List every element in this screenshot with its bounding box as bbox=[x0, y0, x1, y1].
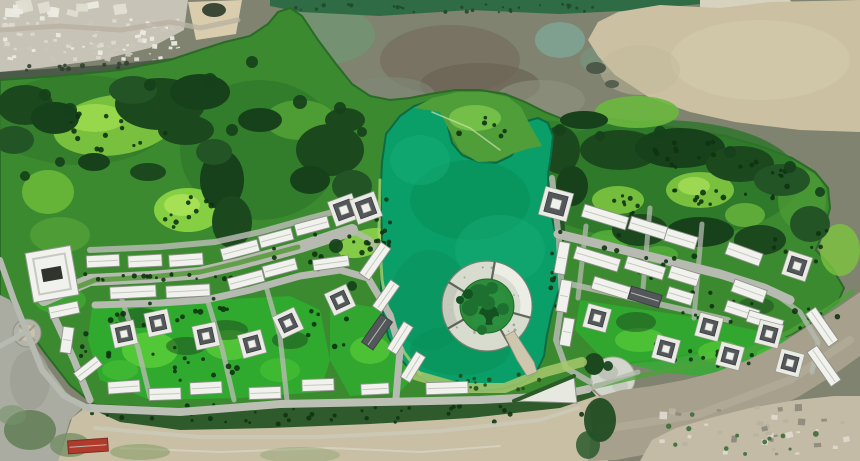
tree-dot bbox=[294, 6, 298, 10]
tree-dot bbox=[825, 229, 828, 232]
tree-dot bbox=[665, 157, 670, 162]
small-building bbox=[56, 33, 61, 37]
small-building bbox=[30, 32, 34, 36]
tree-dot bbox=[567, 6, 570, 9]
small-building bbox=[50, 57, 55, 62]
tree-dot bbox=[393, 5, 396, 8]
blob bbox=[290, 166, 330, 194]
tree-dot bbox=[550, 252, 554, 256]
tree-dot bbox=[383, 228, 388, 233]
tree-dot bbox=[180, 314, 185, 319]
tree-dot bbox=[124, 61, 129, 66]
tree-dot bbox=[193, 309, 198, 314]
tree-dot bbox=[705, 141, 710, 146]
red-roof-building bbox=[68, 438, 109, 454]
tree-dot bbox=[508, 8, 512, 12]
tree-canopy bbox=[203, 73, 217, 87]
blob bbox=[10, 350, 50, 410]
tree-dot bbox=[117, 62, 121, 66]
tree-dot bbox=[460, 6, 463, 9]
tree-dot bbox=[575, 6, 578, 9]
tree-dot bbox=[101, 278, 104, 281]
slab-building bbox=[426, 381, 468, 394]
tree-dot bbox=[735, 434, 739, 438]
tree-dot bbox=[76, 114, 81, 119]
small-building bbox=[69, 41, 74, 45]
small-building bbox=[833, 446, 838, 450]
tree-dot bbox=[310, 412, 315, 417]
small-building bbox=[814, 443, 821, 448]
tower-skylight bbox=[154, 319, 163, 328]
tree-dot bbox=[66, 66, 71, 71]
blob bbox=[754, 164, 810, 196]
small-building bbox=[98, 42, 104, 47]
small-building bbox=[753, 434, 759, 437]
tree-dot bbox=[472, 377, 476, 381]
tower-building bbox=[144, 309, 172, 337]
slab-building bbox=[302, 378, 334, 391]
tree-dot bbox=[749, 163, 754, 168]
tree-dot bbox=[767, 436, 771, 440]
tree-dot bbox=[701, 356, 705, 360]
tree-dot bbox=[106, 354, 111, 359]
tree-dot bbox=[83, 331, 88, 336]
blob bbox=[196, 139, 232, 165]
small-building bbox=[73, 57, 77, 61]
small-building bbox=[5, 8, 20, 18]
tree-dot bbox=[708, 291, 712, 295]
tree-dot bbox=[352, 240, 355, 243]
tree-dot bbox=[672, 189, 676, 193]
tree-dot bbox=[492, 123, 496, 127]
tree-dot bbox=[187, 361, 190, 364]
small-building bbox=[126, 44, 129, 46]
tower-skylight bbox=[120, 330, 129, 339]
small-building bbox=[114, 4, 127, 15]
small-building bbox=[94, 52, 96, 54]
slab-building bbox=[86, 254, 120, 268]
tree-dot bbox=[322, 3, 326, 7]
tree-dot bbox=[120, 311, 126, 317]
tree-dot bbox=[106, 414, 109, 417]
tree-dot bbox=[376, 239, 381, 244]
tree-dot bbox=[179, 379, 182, 382]
tree-dot bbox=[781, 434, 786, 439]
tree-canopy bbox=[293, 95, 307, 109]
slab-building bbox=[361, 383, 390, 395]
tree-canopy bbox=[462, 300, 478, 316]
small-building bbox=[659, 439, 664, 443]
small-building bbox=[659, 411, 667, 419]
tree-dot bbox=[170, 272, 172, 274]
tree-dot bbox=[616, 233, 621, 238]
tree-dot bbox=[498, 11, 500, 13]
tree-dot bbox=[283, 413, 288, 418]
tree-dot bbox=[686, 426, 691, 431]
tree-dot bbox=[697, 156, 701, 160]
tree-dot bbox=[691, 253, 697, 259]
small-building bbox=[109, 52, 114, 56]
tree-dot bbox=[342, 343, 345, 346]
small-building bbox=[131, 32, 135, 35]
small-building bbox=[766, 432, 772, 436]
tree-dot bbox=[79, 354, 83, 358]
small-building bbox=[723, 451, 728, 455]
tree-dot bbox=[672, 256, 677, 261]
tree-dot bbox=[628, 196, 633, 201]
tree-dot bbox=[502, 408, 507, 413]
tree-dot bbox=[674, 165, 677, 168]
tree-dot bbox=[332, 344, 338, 350]
tree-dot bbox=[744, 193, 747, 196]
small-building bbox=[76, 4, 88, 12]
tree-dot bbox=[148, 302, 152, 306]
tree-dot bbox=[211, 373, 216, 378]
tree-dot bbox=[621, 194, 624, 197]
tree-dot bbox=[27, 64, 31, 68]
tree-dot bbox=[539, 4, 541, 6]
tree-dot bbox=[189, 195, 193, 199]
tree-dot bbox=[276, 422, 281, 427]
tree-canopy bbox=[334, 102, 346, 114]
tree-dot bbox=[75, 136, 80, 141]
slab-building bbox=[108, 380, 141, 394]
small-building bbox=[114, 47, 119, 51]
tree-dot bbox=[602, 245, 607, 250]
tree-dot bbox=[720, 195, 726, 201]
tree-dot bbox=[70, 121, 73, 124]
blob bbox=[790, 206, 830, 242]
small-building bbox=[90, 42, 93, 44]
blob bbox=[560, 111, 608, 129]
tree-canopy bbox=[784, 161, 796, 173]
blob bbox=[616, 312, 656, 332]
small-building bbox=[171, 41, 177, 46]
tree-canopy bbox=[724, 146, 736, 158]
tree-dot bbox=[316, 313, 320, 317]
tree-dot bbox=[407, 406, 411, 410]
blob bbox=[584, 353, 604, 375]
tree-dot bbox=[230, 370, 235, 375]
tree-dot bbox=[451, 405, 455, 409]
tree-dot bbox=[306, 333, 311, 338]
tree-dot bbox=[459, 374, 463, 378]
tree-dot bbox=[402, 7, 405, 10]
tree-dot bbox=[579, 412, 584, 417]
tower-skylight bbox=[662, 345, 671, 354]
tree-dot bbox=[813, 431, 819, 437]
tree-dot bbox=[300, 9, 302, 11]
tree-dot bbox=[681, 311, 684, 314]
tree-canopy bbox=[55, 157, 65, 167]
tree-dot bbox=[724, 446, 729, 451]
blob bbox=[535, 22, 585, 58]
tree-dot bbox=[367, 241, 371, 245]
tree-canopy bbox=[486, 282, 498, 294]
tree-dot bbox=[635, 204, 639, 208]
tree-dot bbox=[487, 377, 492, 382]
tree-dot bbox=[115, 312, 120, 317]
tree-dot bbox=[163, 217, 167, 221]
tree-dot bbox=[225, 308, 228, 311]
tree-dot bbox=[161, 278, 165, 282]
small-building bbox=[36, 22, 39, 25]
small-building bbox=[18, 50, 22, 52]
tree-dot bbox=[151, 353, 154, 356]
tower-skylight bbox=[202, 332, 211, 341]
tree-dot bbox=[591, 6, 594, 9]
tree-dot bbox=[714, 189, 718, 193]
small-building bbox=[134, 57, 139, 61]
tower-skylight bbox=[593, 314, 602, 323]
tree-dot bbox=[312, 251, 318, 257]
tree-dot bbox=[400, 6, 402, 8]
tree-dot bbox=[673, 443, 677, 447]
tree-dot bbox=[347, 3, 350, 6]
tree-dot bbox=[709, 203, 712, 206]
tree-dot bbox=[367, 246, 373, 252]
tower-skylight bbox=[550, 198, 562, 210]
tree-dot bbox=[612, 199, 616, 203]
tree-dot bbox=[482, 266, 484, 268]
tree-dot bbox=[212, 297, 216, 301]
blob bbox=[260, 358, 300, 382]
tree-dot bbox=[155, 276, 158, 279]
tree-dot bbox=[623, 203, 626, 206]
tree-dot bbox=[784, 184, 790, 190]
tree-dot bbox=[694, 313, 697, 316]
blob bbox=[78, 153, 110, 171]
tree-canopy bbox=[329, 239, 343, 253]
small-building bbox=[164, 28, 166, 29]
tree-canopy bbox=[603, 361, 613, 371]
tree-dot bbox=[521, 387, 524, 390]
blob bbox=[586, 62, 606, 74]
small-building bbox=[121, 57, 125, 61]
tree-dot bbox=[644, 256, 648, 260]
tree-dot bbox=[754, 160, 759, 165]
small-building bbox=[771, 415, 778, 420]
tree-dot bbox=[700, 190, 706, 196]
tree-dot bbox=[558, 230, 562, 234]
tree-dot bbox=[750, 353, 754, 357]
tree-dot bbox=[197, 309, 203, 315]
masterplan-aerial-svg bbox=[0, 0, 860, 461]
tree-dot bbox=[359, 250, 364, 255]
slab-building bbox=[166, 284, 211, 298]
tree-dot bbox=[697, 202, 700, 205]
tree-dot bbox=[447, 412, 451, 416]
tree-dot bbox=[119, 119, 123, 123]
tree-dot bbox=[173, 346, 176, 349]
tree-dot bbox=[141, 274, 146, 279]
tree-canopy bbox=[654, 126, 666, 138]
tree-dot bbox=[309, 309, 314, 314]
small-building bbox=[91, 44, 97, 49]
tree-dot bbox=[835, 314, 840, 319]
tower-skylight bbox=[765, 330, 774, 339]
tree-dot bbox=[499, 134, 504, 139]
tree-dot bbox=[513, 324, 516, 327]
tree-dot bbox=[186, 200, 191, 205]
tree-dot bbox=[743, 452, 747, 456]
tower-building bbox=[192, 322, 220, 350]
tree-dot bbox=[689, 357, 693, 361]
tree-dot bbox=[173, 365, 177, 369]
tree-canopy bbox=[63, 103, 77, 117]
tree-dot bbox=[771, 171, 774, 174]
tree-dot bbox=[58, 65, 62, 69]
small-building bbox=[176, 47, 178, 48]
tree-canopy bbox=[477, 325, 487, 335]
tree-dot bbox=[688, 349, 692, 353]
tree-dot bbox=[517, 373, 521, 377]
small-building bbox=[775, 453, 778, 455]
small-building bbox=[48, 11, 58, 17]
tree-dot bbox=[254, 411, 257, 414]
tree-dot bbox=[312, 322, 317, 327]
tree-dot bbox=[132, 273, 137, 278]
slab-building bbox=[190, 381, 223, 395]
small-building bbox=[26, 46, 31, 50]
tree-dot bbox=[396, 5, 400, 9]
tower-building bbox=[110, 320, 138, 348]
tower-skylight bbox=[786, 359, 795, 368]
tree-dot bbox=[208, 416, 213, 421]
small-building bbox=[796, 431, 800, 433]
small-building bbox=[32, 49, 36, 52]
small-building bbox=[111, 40, 116, 44]
tree-canopy bbox=[492, 316, 502, 326]
blob bbox=[449, 105, 501, 131]
slab-building bbox=[110, 285, 157, 299]
tree-dot bbox=[690, 412, 695, 417]
tree-dot bbox=[583, 10, 586, 13]
small-building bbox=[687, 435, 691, 439]
tree-dot bbox=[394, 421, 397, 424]
tree-dot bbox=[818, 245, 823, 250]
plaza-ring-segment bbox=[448, 285, 454, 325]
small-building bbox=[98, 50, 103, 55]
small-building bbox=[170, 36, 175, 40]
tree-dot bbox=[142, 323, 146, 327]
tree-canopy bbox=[20, 171, 30, 181]
small-building bbox=[125, 52, 131, 57]
tree-dot bbox=[710, 140, 715, 145]
tree-dot bbox=[773, 237, 777, 241]
tree-dot bbox=[710, 304, 715, 309]
tree-dot bbox=[194, 209, 199, 214]
tree-dot bbox=[195, 277, 198, 280]
tree-dot bbox=[483, 383, 486, 386]
small-building bbox=[778, 407, 783, 412]
small-building bbox=[798, 418, 806, 425]
tree-dot bbox=[333, 413, 337, 417]
tree-dot bbox=[483, 116, 487, 120]
small-building bbox=[150, 37, 154, 41]
small-building bbox=[107, 45, 112, 49]
tree-dot bbox=[807, 307, 810, 310]
tree-dot bbox=[222, 276, 227, 281]
tree-dot bbox=[108, 317, 114, 323]
blob bbox=[202, 3, 226, 17]
tree-dot bbox=[816, 231, 821, 236]
tree-dot bbox=[172, 225, 176, 229]
tree-canopy bbox=[357, 127, 367, 137]
tree-dot bbox=[779, 169, 783, 173]
tree-dot bbox=[187, 215, 192, 220]
tree-dot bbox=[224, 421, 227, 424]
slab-building bbox=[128, 254, 163, 268]
tree-dot bbox=[508, 412, 513, 417]
tree-dot bbox=[170, 213, 173, 216]
tree-dot bbox=[669, 162, 674, 167]
tree-dot bbox=[244, 419, 248, 423]
tree-dot bbox=[138, 141, 142, 145]
tree-dot bbox=[789, 448, 792, 451]
small-building bbox=[731, 439, 736, 443]
tree-dot bbox=[783, 250, 787, 254]
tree-dot bbox=[561, 3, 564, 6]
tree-dot bbox=[474, 381, 477, 384]
tree-dot bbox=[187, 273, 191, 277]
tree-dot bbox=[80, 63, 85, 68]
tower-skylight bbox=[248, 340, 257, 349]
tree-dot bbox=[502, 6, 504, 8]
tree-canopy bbox=[595, 131, 605, 141]
tree-dot bbox=[750, 302, 753, 305]
small-building bbox=[816, 429, 819, 431]
tree-dot bbox=[673, 146, 678, 151]
tree-dot bbox=[456, 130, 462, 136]
tree-dot bbox=[464, 277, 466, 279]
tree-dot bbox=[513, 294, 515, 296]
tree-dot bbox=[364, 416, 368, 420]
small-building bbox=[821, 419, 827, 422]
tree-dot bbox=[292, 408, 294, 410]
tree-dot bbox=[456, 326, 458, 328]
blob bbox=[595, 96, 679, 128]
tree-dot bbox=[63, 64, 66, 67]
tree-dot bbox=[208, 203, 214, 209]
tree-dot bbox=[810, 246, 813, 249]
small-building bbox=[71, 47, 74, 50]
masterplan-aerial-view bbox=[0, 0, 860, 461]
small-building bbox=[783, 419, 788, 422]
tree-dot bbox=[163, 131, 167, 135]
small-building bbox=[45, 48, 49, 51]
tree-dot bbox=[485, 3, 488, 6]
tree-dot bbox=[349, 3, 353, 7]
tree-dot bbox=[102, 63, 106, 67]
tree-dot bbox=[132, 144, 135, 147]
tree-dot bbox=[654, 151, 660, 157]
tree-dot bbox=[780, 174, 784, 178]
blob bbox=[158, 115, 214, 145]
tree-dot bbox=[25, 69, 28, 72]
tree-dot bbox=[150, 416, 154, 420]
tree-dot bbox=[226, 364, 232, 370]
small-building bbox=[669, 408, 676, 415]
tree-canopy bbox=[815, 187, 825, 197]
tree-dot bbox=[191, 419, 194, 422]
small-building bbox=[82, 46, 85, 48]
blob bbox=[605, 80, 619, 88]
tree-dot bbox=[471, 8, 475, 12]
tree-dot bbox=[550, 277, 556, 283]
tree-dot bbox=[400, 409, 403, 412]
tree-dot bbox=[762, 440, 767, 445]
